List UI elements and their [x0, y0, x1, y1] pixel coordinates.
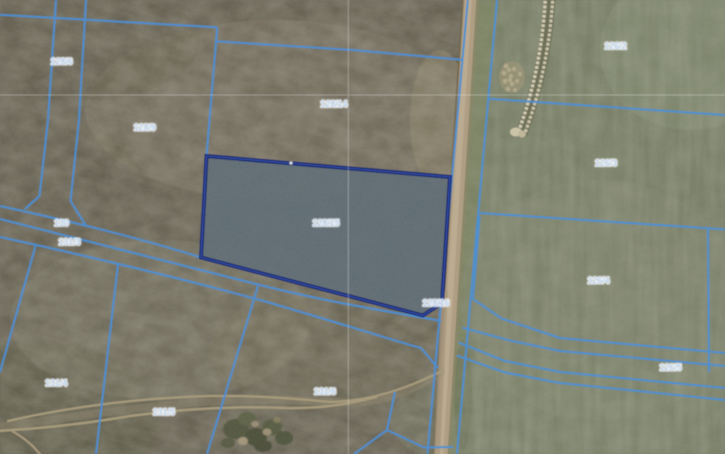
- svg-text:128/16: 128/16: [423, 298, 450, 308]
- svg-text:131/5: 131/5: [153, 407, 175, 417]
- svg-text:126/2: 126/2: [604, 41, 626, 51]
- svg-text:126/3: 126/3: [595, 158, 617, 168]
- svg-text:131/6: 131/6: [314, 386, 336, 396]
- svg-text:130: 130: [54, 218, 69, 228]
- svg-text:128/14: 128/14: [321, 99, 348, 109]
- svg-text:131/3: 131/3: [58, 237, 80, 247]
- svg-text:128/6: 128/6: [51, 56, 73, 66]
- svg-text:131/4: 131/4: [45, 378, 67, 388]
- svg-text:128/9: 128/9: [134, 122, 156, 132]
- svg-text:126/4: 126/4: [587, 275, 609, 285]
- svg-text:128/15: 128/15: [313, 218, 340, 228]
- svg-text:126/5: 126/5: [659, 362, 681, 372]
